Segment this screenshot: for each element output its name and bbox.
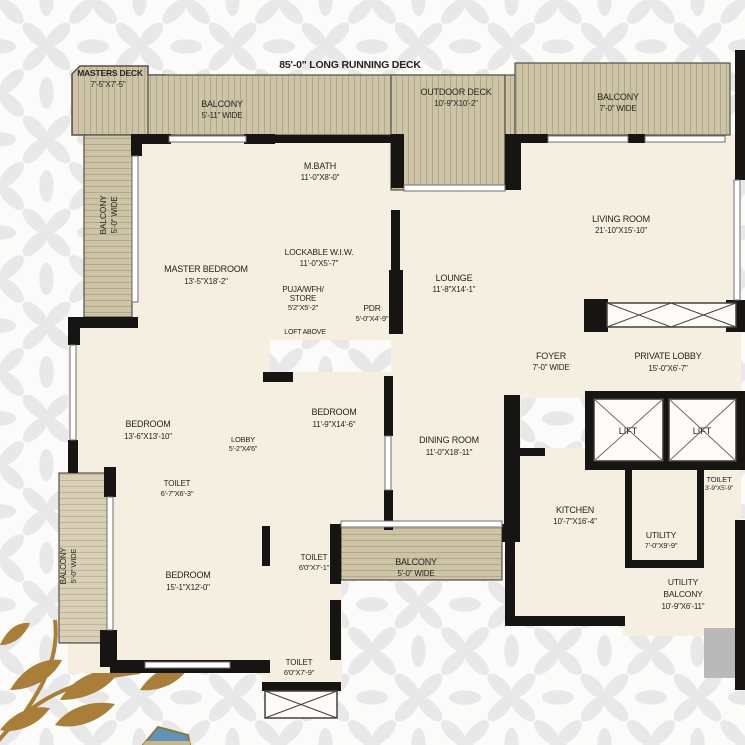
svg-text:LOCKABLE W.I.W.: LOCKABLE W.I.W. xyxy=(285,247,354,257)
svg-text:10'-9"X10'-2": 10'-9"X10'-2" xyxy=(434,99,478,108)
svg-text:KITCHEN: KITCHEN xyxy=(556,505,594,515)
svg-text:BALCONY: BALCONY xyxy=(201,99,243,109)
svg-text:13'-5"X18'-2": 13'-5"X18'-2" xyxy=(184,277,228,286)
svg-text:15'-1"X12'-0": 15'-1"X12'-0" xyxy=(166,583,210,592)
svg-text:TOILET: TOILET xyxy=(707,475,733,484)
svg-text:LOFT ABOVE: LOFT ABOVE xyxy=(284,329,326,336)
svg-text:STORE: STORE xyxy=(290,294,316,303)
svg-text:21'-10"X15'-10": 21'-10"X15'-10" xyxy=(595,226,647,235)
svg-text:6'0"X7'-9": 6'0"X7'-9" xyxy=(284,668,315,677)
svg-text:TOILET: TOILET xyxy=(164,479,191,488)
svg-text:DINING ROOM: DINING ROOM xyxy=(419,435,479,445)
svg-text:PDR: PDR xyxy=(363,303,380,313)
svg-text:TOILET: TOILET xyxy=(286,658,313,667)
svg-text:BALCONY: BALCONY xyxy=(59,547,68,585)
svg-text:BALCONY: BALCONY xyxy=(98,195,108,235)
svg-text:5'-0"X4'-9": 5'-0"X4'-9" xyxy=(356,314,389,323)
svg-text:5'-0" WIDE: 5'-0" WIDE xyxy=(110,196,119,233)
svg-text:85'-0" LONG RUNNING DECK: 85'-0" LONG RUNNING DECK xyxy=(279,59,421,71)
svg-text:TOILET: TOILET xyxy=(301,553,328,562)
svg-text:LIFT: LIFT xyxy=(619,426,638,436)
svg-text:PRIVATE LOBBY: PRIVATE LOBBY xyxy=(634,351,701,361)
svg-text:6'0"X7'-1": 6'0"X7'-1" xyxy=(299,563,330,572)
svg-text:BALCONY: BALCONY xyxy=(663,589,703,599)
svg-text:UTILITY: UTILITY xyxy=(646,530,677,540)
svg-text:UTILITY: UTILITY xyxy=(668,577,699,587)
svg-text:LIVING ROOM: LIVING ROOM xyxy=(592,214,650,224)
svg-text:11'-9"X14'-6": 11'-9"X14'-6" xyxy=(313,420,356,429)
svg-text:BALCONY: BALCONY xyxy=(597,92,639,102)
svg-text:5'-0" WIDE: 5'-0" WIDE xyxy=(397,569,434,578)
svg-text:3'-9"X5'-9": 3'-9"X5'-9" xyxy=(705,485,734,492)
svg-text:11'-0"X8'-0": 11'-0"X8'-0" xyxy=(301,173,340,182)
svg-text:M.BATH: M.BATH xyxy=(304,161,336,171)
svg-text:MASTERS DECK: MASTERS DECK xyxy=(77,68,144,78)
svg-text:LIFT: LIFT xyxy=(693,426,712,436)
svg-text:BEDROOM: BEDROOM xyxy=(125,419,170,429)
svg-text:5'-11" WIDE: 5'-11" WIDE xyxy=(202,111,243,120)
svg-text:11'-0"X5'-7": 11'-0"X5'-7" xyxy=(300,259,339,268)
svg-text:7'-5"X7'-5": 7'-5"X7'-5" xyxy=(91,80,126,89)
svg-text:7'-0"X9'-9": 7'-0"X9'-9" xyxy=(645,541,678,550)
svg-text:5'-0" WIDE: 5'-0" WIDE xyxy=(69,549,78,584)
svg-text:OUTDOOR DECK: OUTDOOR DECK xyxy=(420,87,491,97)
svg-text:BEDROOM: BEDROOM xyxy=(165,570,210,580)
svg-text:LOUNGE: LOUNGE xyxy=(436,273,473,283)
svg-text:LOBBY: LOBBY xyxy=(231,435,255,444)
svg-text:5'-2"X4'6": 5'-2"X4'6" xyxy=(229,446,258,453)
svg-text:BEDROOM: BEDROOM xyxy=(311,407,356,417)
svg-text:13'-6"X13'-10": 13'-6"X13'-10" xyxy=(124,432,172,441)
svg-text:7'-0" WIDE: 7'-0" WIDE xyxy=(532,363,569,372)
svg-text:11'-0"X18'-11": 11'-0"X18'-11" xyxy=(426,448,473,457)
svg-text:5'2"X5'-2": 5'2"X5'-2" xyxy=(288,303,319,312)
svg-text:10'-9"X6'-11": 10'-9"X6'-11" xyxy=(662,602,705,611)
svg-text:6'-7"X6'-3": 6'-7"X6'-3" xyxy=(161,489,194,498)
svg-text:BALCONY: BALCONY xyxy=(395,557,437,567)
svg-text:PUJA/WFH/: PUJA/WFH/ xyxy=(282,285,324,294)
svg-text:MASTER BEDROOM: MASTER BEDROOM xyxy=(164,264,248,274)
svg-text:7'-0" WIDE: 7'-0" WIDE xyxy=(599,104,636,113)
svg-text:11'-8"X14'-1": 11'-8"X14'-1" xyxy=(433,285,476,294)
svg-text:15'-0"X6'-7": 15'-0"X6'-7" xyxy=(648,364,688,373)
svg-text:FOYER: FOYER xyxy=(536,351,567,361)
svg-text:10'-7"X16'-4": 10'-7"X16'-4" xyxy=(553,517,597,526)
